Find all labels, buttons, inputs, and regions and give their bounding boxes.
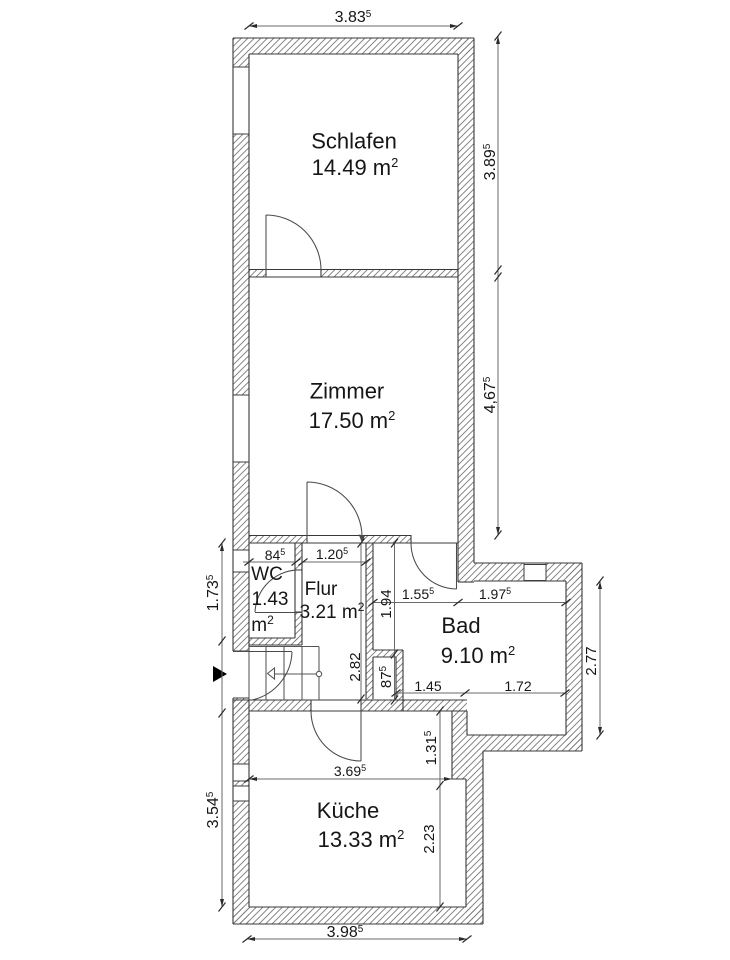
svg-text:Küche: Küche: [317, 798, 379, 823]
svg-text:1.72: 1.72: [504, 678, 531, 694]
svg-text:Schlafen: Schlafen: [311, 129, 397, 154]
svg-text:3.21 m2: 3.21 m2: [300, 600, 365, 623]
svg-text:2.77: 2.77: [583, 646, 600, 675]
svg-text:2.82: 2.82: [347, 652, 364, 681]
svg-text:1.94: 1.94: [378, 589, 395, 618]
svg-text:17.50 m2: 17.50 m2: [309, 408, 396, 433]
svg-text:1.45: 1.45: [414, 678, 441, 694]
svg-text:13.33 m2: 13.33 m2: [318, 827, 405, 852]
svg-text:WC: WC: [251, 564, 283, 585]
svg-text:14.49 m2: 14.49 m2: [312, 155, 399, 180]
svg-text:2.23: 2.23: [421, 824, 438, 853]
svg-text:9.10 m2: 9.10 m2: [441, 643, 516, 668]
svg-text:Bad: Bad: [441, 613, 480, 638]
svg-text:Flur: Flur: [305, 579, 338, 600]
svg-text:1.43: 1.43: [252, 589, 289, 610]
svg-text:Zimmer: Zimmer: [310, 379, 385, 404]
